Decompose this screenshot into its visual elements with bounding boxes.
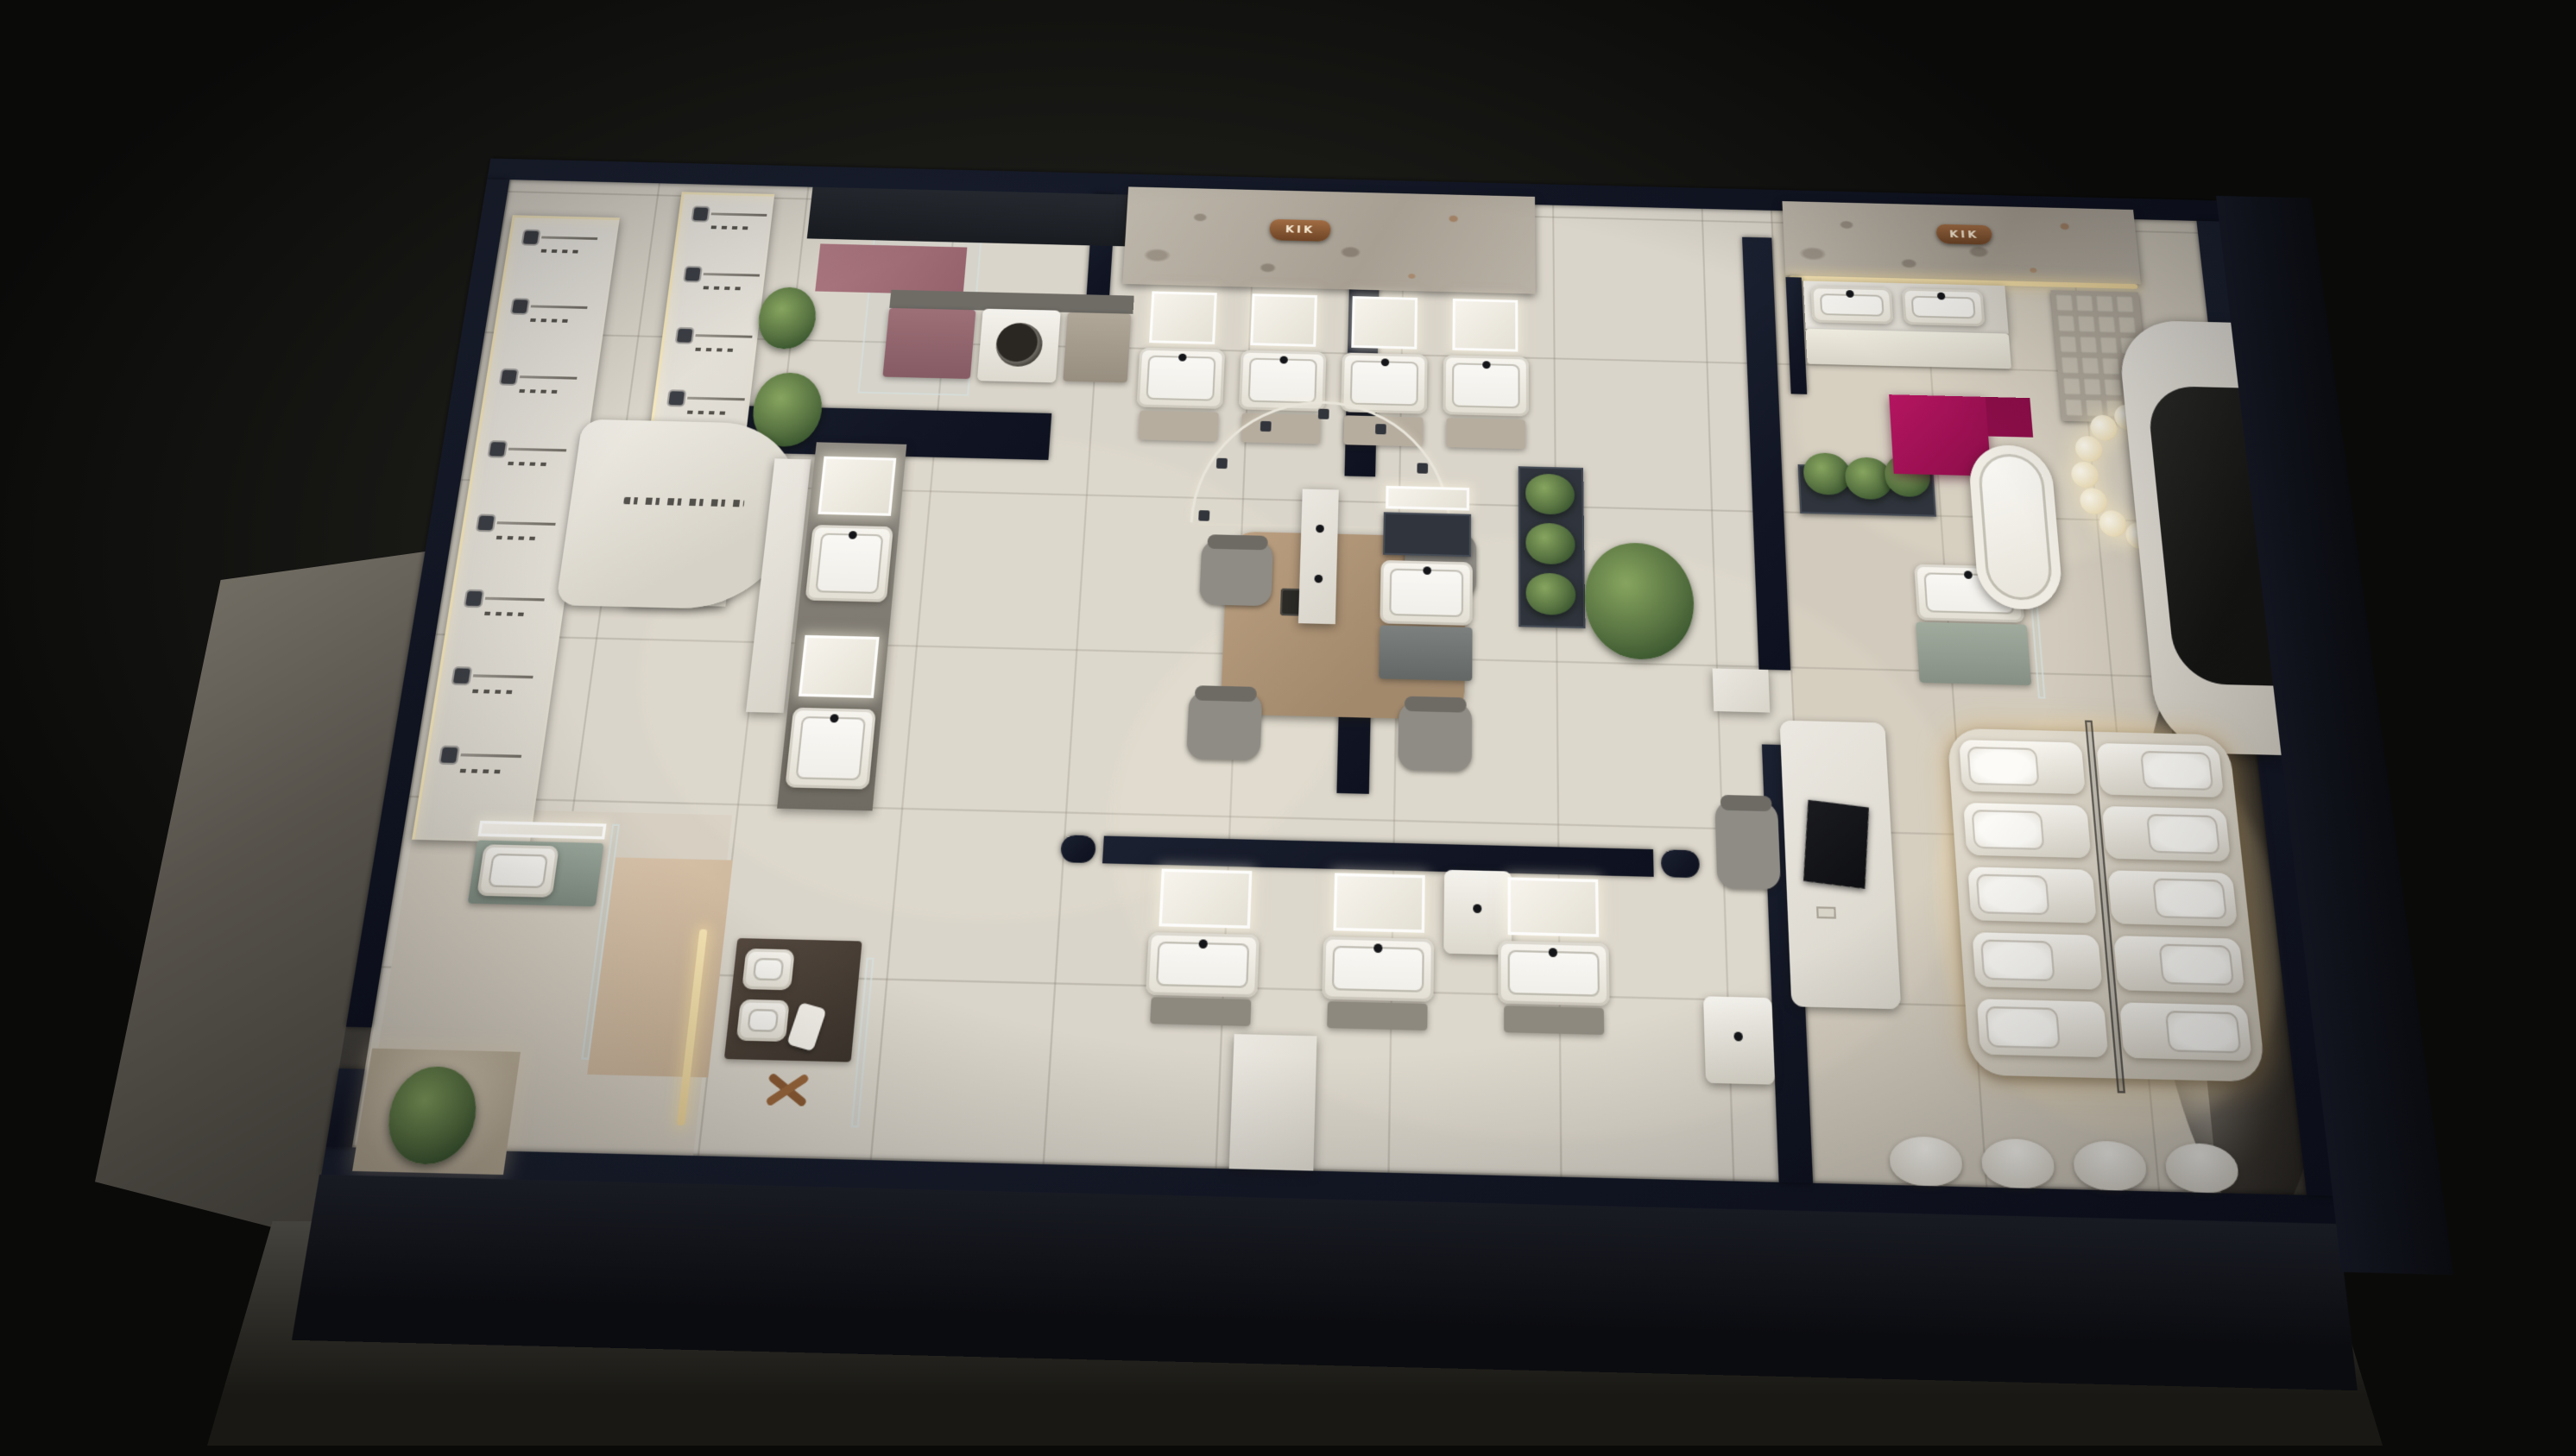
shower-column — [683, 203, 780, 262]
shower-head-icon — [465, 591, 483, 606]
tile-sample — [2055, 294, 2074, 312]
tile-sample — [2057, 315, 2075, 332]
vanity-bay — [1439, 295, 1533, 455]
shower-head-icon — [477, 516, 495, 531]
shower-head-icon — [1417, 463, 1428, 473]
basin — [477, 844, 559, 898]
sage-vanity-cabinet — [1916, 622, 2031, 686]
wall-hung-basin — [1980, 1138, 2056, 1189]
wall-hung-basin — [2163, 1143, 2240, 1194]
tile-sample — [2096, 295, 2114, 312]
faucet — [1473, 904, 1481, 913]
display-stand — [1229, 1034, 1317, 1171]
mirror — [1159, 869, 1252, 929]
vanity-cabinet — [1150, 997, 1251, 1026]
tile-sample — [2061, 356, 2079, 374]
shower-column — [666, 324, 767, 385]
faucet — [1482, 361, 1490, 369]
shower-head-icon — [512, 299, 528, 313]
shower-rail — [541, 236, 597, 240]
hand-shower-icon — [472, 690, 518, 695]
brand-sign-text: KIK — [1285, 224, 1316, 236]
shower-rail — [704, 273, 760, 276]
shower-head-icon — [685, 268, 700, 281]
shower-head-icon — [501, 370, 517, 384]
basin — [736, 999, 790, 1042]
brand-sign: KIK — [1269, 219, 1330, 242]
faucet — [1937, 293, 1946, 300]
consult-counter — [1780, 721, 1902, 1010]
shower-head-icon — [489, 442, 506, 457]
wooden-stool — [762, 1064, 813, 1113]
hand-shower-icon — [711, 225, 754, 230]
brand-sign-text: KIK — [1949, 229, 1979, 242]
faucet — [1373, 943, 1382, 953]
brand-sign-lounge: KIK — [1935, 224, 1992, 245]
shower-column — [465, 510, 571, 575]
shower-column — [489, 365, 591, 427]
toilet — [1977, 999, 2109, 1057]
meeting-chair — [1398, 702, 1472, 772]
shower-head-icon — [1375, 424, 1386, 434]
lit-mirror-strip — [478, 821, 607, 840]
gray-vanity-cabinet — [1379, 625, 1472, 681]
shower-rail — [485, 597, 545, 602]
showroom-render: KIK — [0, 0, 2576, 1456]
toilet-lid — [2152, 879, 2227, 920]
tile-sample — [2077, 316, 2095, 333]
washing-machine — [977, 309, 1061, 383]
shower-head-icon — [1216, 458, 1228, 469]
faucet — [1314, 575, 1323, 583]
tile-sample — [2101, 357, 2119, 375]
toilet-lid — [2140, 751, 2213, 791]
tile-sample — [2059, 336, 2077, 353]
hand-shower-icon — [687, 411, 730, 415]
faucet — [1964, 570, 1973, 579]
marble-feature-wall — [1122, 186, 1535, 293]
vanity-bay — [1131, 287, 1232, 447]
wall-hung-basin — [1889, 1136, 1964, 1187]
light-bulb — [2079, 488, 2108, 515]
toilet-lid — [1985, 1006, 2061, 1049]
white-console — [1298, 489, 1339, 625]
shelf-plant — [1525, 523, 1575, 565]
chair-back — [1195, 685, 1257, 702]
tile-sample — [2118, 317, 2136, 334]
faucet — [1381, 358, 1389, 366]
mirror — [1452, 299, 1518, 352]
toilet-lid — [1980, 939, 2055, 981]
toilet-lid — [1976, 874, 2050, 916]
faucet — [1423, 566, 1431, 575]
vanity-cabinet — [1446, 418, 1525, 449]
shelf-plant — [1525, 474, 1575, 515]
shower-rail — [460, 753, 521, 758]
shower-head-icon — [453, 668, 470, 684]
toilet-lid — [2146, 814, 2220, 854]
tile-sample — [2104, 379, 2122, 396]
faucet — [1549, 948, 1557, 957]
shower-rail — [520, 375, 578, 380]
washer-door — [994, 322, 1044, 367]
toilet — [2096, 743, 2224, 797]
faucet-pedestal — [1703, 996, 1775, 1084]
shower-rail — [496, 521, 555, 526]
double-vanity-counter — [1803, 280, 2009, 333]
light-bulb — [2099, 510, 2129, 537]
toilet — [1959, 740, 2086, 794]
mirror — [799, 635, 880, 698]
tile-sample — [2080, 337, 2098, 354]
shower-column — [453, 585, 559, 652]
double-vanity-front — [1806, 329, 2011, 369]
shower-rail — [531, 305, 588, 308]
wall-stub-right — [1661, 849, 1700, 878]
shower-column — [511, 226, 611, 286]
shower-head-icon — [668, 391, 685, 405]
light-bulb — [2070, 462, 2099, 488]
open-shelf-unit — [1383, 512, 1471, 557]
mirror — [1250, 293, 1317, 347]
towel — [786, 1002, 827, 1051]
faucet — [1733, 1031, 1743, 1041]
hand-shower-icon — [530, 318, 573, 323]
shower-column — [500, 294, 601, 355]
toilet-lid — [2165, 1011, 2242, 1054]
tile-sample — [2116, 296, 2134, 313]
toilet-lid — [1967, 747, 2039, 786]
hand-shower-icon — [704, 286, 746, 290]
hand-shower-icon — [695, 348, 738, 352]
toilet — [2119, 1002, 2252, 1061]
shower-rail — [711, 212, 767, 216]
chair-back — [1405, 696, 1467, 713]
tile-sample — [2062, 378, 2080, 395]
wall-hung-basin — [2072, 1140, 2148, 1191]
faucet — [1846, 290, 1854, 298]
shower-head-icon — [1260, 421, 1272, 432]
toilet — [2107, 870, 2238, 926]
shower-rail — [473, 674, 534, 678]
tile-sample — [2098, 316, 2116, 333]
shower-column — [427, 741, 536, 811]
hand-shower-icon — [519, 389, 562, 394]
shower-column — [477, 437, 581, 501]
shower-rail — [508, 448, 566, 452]
shower-head-icon — [440, 747, 458, 763]
meeting-chair — [1199, 539, 1273, 606]
display-screen — [1803, 800, 1869, 889]
tile-sample — [2081, 357, 2099, 375]
plant-shelf — [1518, 466, 1586, 628]
toilet-lid — [2158, 943, 2234, 986]
shower-rail — [687, 397, 745, 401]
basin — [742, 949, 795, 990]
chair-back — [1207, 534, 1268, 550]
toilet — [2102, 806, 2231, 861]
mirror — [1333, 873, 1424, 932]
shower-head-icon — [693, 207, 709, 220]
shower-column — [440, 663, 548, 731]
counter-chair — [1714, 800, 1781, 890]
shower-head-icon — [1198, 510, 1209, 521]
tile-sample — [2083, 378, 2101, 395]
chair-back — [1720, 795, 1772, 811]
faucet — [1316, 525, 1324, 533]
vanity-bay — [1481, 874, 1628, 1037]
hand-shower-icon — [484, 612, 529, 616]
toilet — [2113, 936, 2245, 993]
tile-sample — [2075, 295, 2093, 312]
tile-sample — [2099, 337, 2118, 354]
mirror — [1351, 296, 1417, 350]
shower-column — [674, 262, 773, 323]
shelf-plant — [1526, 572, 1576, 615]
hand-shower-icon — [496, 536, 541, 540]
mirror — [1149, 291, 1217, 344]
shower-head-icon — [677, 329, 692, 343]
hand-shower-icon — [541, 249, 584, 254]
mirror — [818, 457, 896, 516]
shower-rail — [695, 334, 752, 338]
toilet-lid — [1972, 810, 2045, 850]
floor-plan: KIK — [321, 159, 2336, 1224]
wall-tagline — [623, 497, 744, 507]
wall-basin-row — [1889, 1136, 2253, 1198]
beige-cabinet — [1063, 312, 1131, 383]
hand-shower-icon — [508, 462, 552, 466]
side-stand — [1713, 668, 1771, 712]
vanity-cabinet — [1504, 1005, 1604, 1035]
mirror — [1508, 877, 1600, 936]
toilet — [1963, 803, 2091, 858]
mirror-strip — [1386, 486, 1469, 511]
remote-control — [1816, 906, 1836, 918]
vanity-bay — [1127, 867, 1279, 1030]
toilet — [1967, 867, 2097, 923]
meeting-chair — [1186, 690, 1262, 760]
shower-head-icon — [1318, 409, 1329, 419]
wall-stub-left — [1060, 835, 1096, 863]
toilet — [1972, 932, 2102, 990]
vanity-cabinet — [1138, 410, 1218, 441]
vanity-cabinet — [1327, 1001, 1427, 1031]
pink-wall-panel — [815, 243, 967, 294]
shower-head-icon — [523, 230, 540, 243]
magenta-desk-wing — [1986, 397, 2033, 438]
vanity-bay — [1304, 870, 1452, 1033]
brown-vanity — [724, 938, 862, 1062]
hand-shower-icon — [460, 769, 506, 774]
pink-cabinet — [882, 308, 975, 379]
